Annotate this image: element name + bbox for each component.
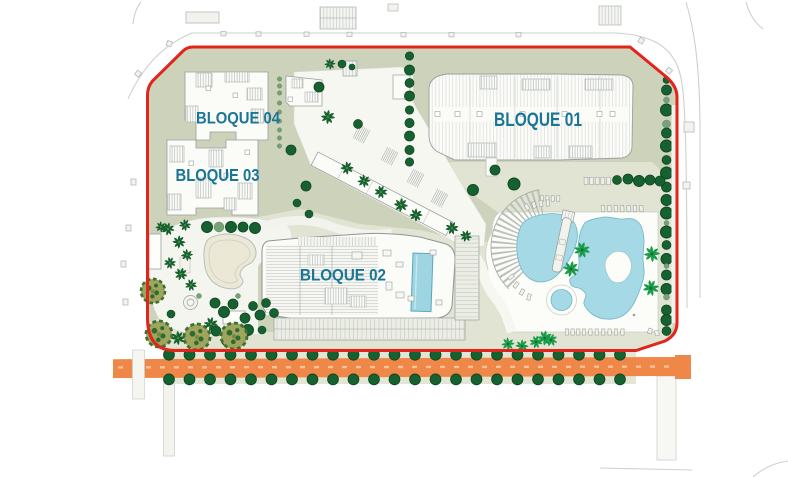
svg-text:BLOQUE 03: BLOQUE 03: [176, 165, 260, 185]
svg-text:BLOQUE 04: BLOQUE 04: [196, 109, 280, 128]
svg-text:BLOQUE 02: BLOQUE 02: [300, 267, 386, 285]
svg-text:BLOQUE 01: BLOQUE 01: [494, 110, 582, 131]
